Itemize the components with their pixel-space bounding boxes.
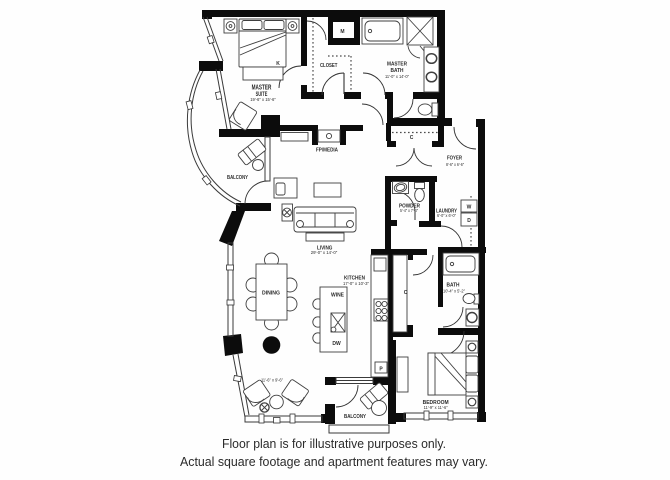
svg-text:11′-0″ x 14′-0″: 11′-0″ x 14′-0″ [385, 74, 409, 79]
svg-text:D: D [467, 218, 471, 224]
svg-text:K: K [276, 61, 280, 67]
svg-text:17′-0″ x 10′-3″: 17′-0″ x 10′-3″ [343, 281, 369, 286]
svg-text:29′-0″ x 14′-0″: 29′-0″ x 14′-0″ [311, 250, 338, 255]
svg-text:Actual square footage and apar: Actual square footage and apartment feat… [180, 454, 488, 469]
svg-text:11′-6″ x 9′-6″: 11′-6″ x 9′-6″ [261, 378, 283, 383]
svg-text:MASTER: MASTER [387, 62, 408, 68]
svg-text:M: M [340, 29, 344, 35]
svg-text:19′-6″ x 15′-6″: 19′-6″ x 15′-6″ [250, 97, 276, 102]
svg-text:10′-4″ x 5′-2″: 10′-4″ x 5′-2″ [443, 289, 465, 294]
svg-text:WINE: WINE [331, 293, 345, 299]
svg-text:CLOSET: CLOSET [320, 63, 338, 69]
svg-text:MASTER: MASTER [252, 85, 272, 92]
svg-text:C: C [410, 135, 414, 141]
svg-text:5′-4″ x 7′-4″: 5′-4″ x 7′-4″ [400, 208, 418, 213]
svg-text:FP/MEDIA: FP/MEDIA [316, 148, 338, 154]
svg-text:DW: DW [332, 341, 341, 347]
svg-text:DINING: DINING [262, 291, 280, 297]
svg-text:6′-0″ x 6′-0″: 6′-0″ x 6′-0″ [437, 213, 456, 218]
svg-text:BALCONY: BALCONY [344, 414, 366, 420]
svg-text:8′-6″ x 6′-6″: 8′-6″ x 6′-6″ [446, 162, 464, 167]
svg-text:11′-9″ x 11′-6″: 11′-9″ x 11′-6″ [424, 405, 448, 410]
svg-text:C: C [404, 290, 408, 296]
svg-text:BALCONY: BALCONY [227, 175, 248, 181]
svg-text:FOYER: FOYER [447, 156, 462, 162]
svg-text:Floor plan is for illustrative: Floor plan is for illustrative purposes … [222, 436, 446, 451]
svg-text:W: W [467, 205, 472, 211]
